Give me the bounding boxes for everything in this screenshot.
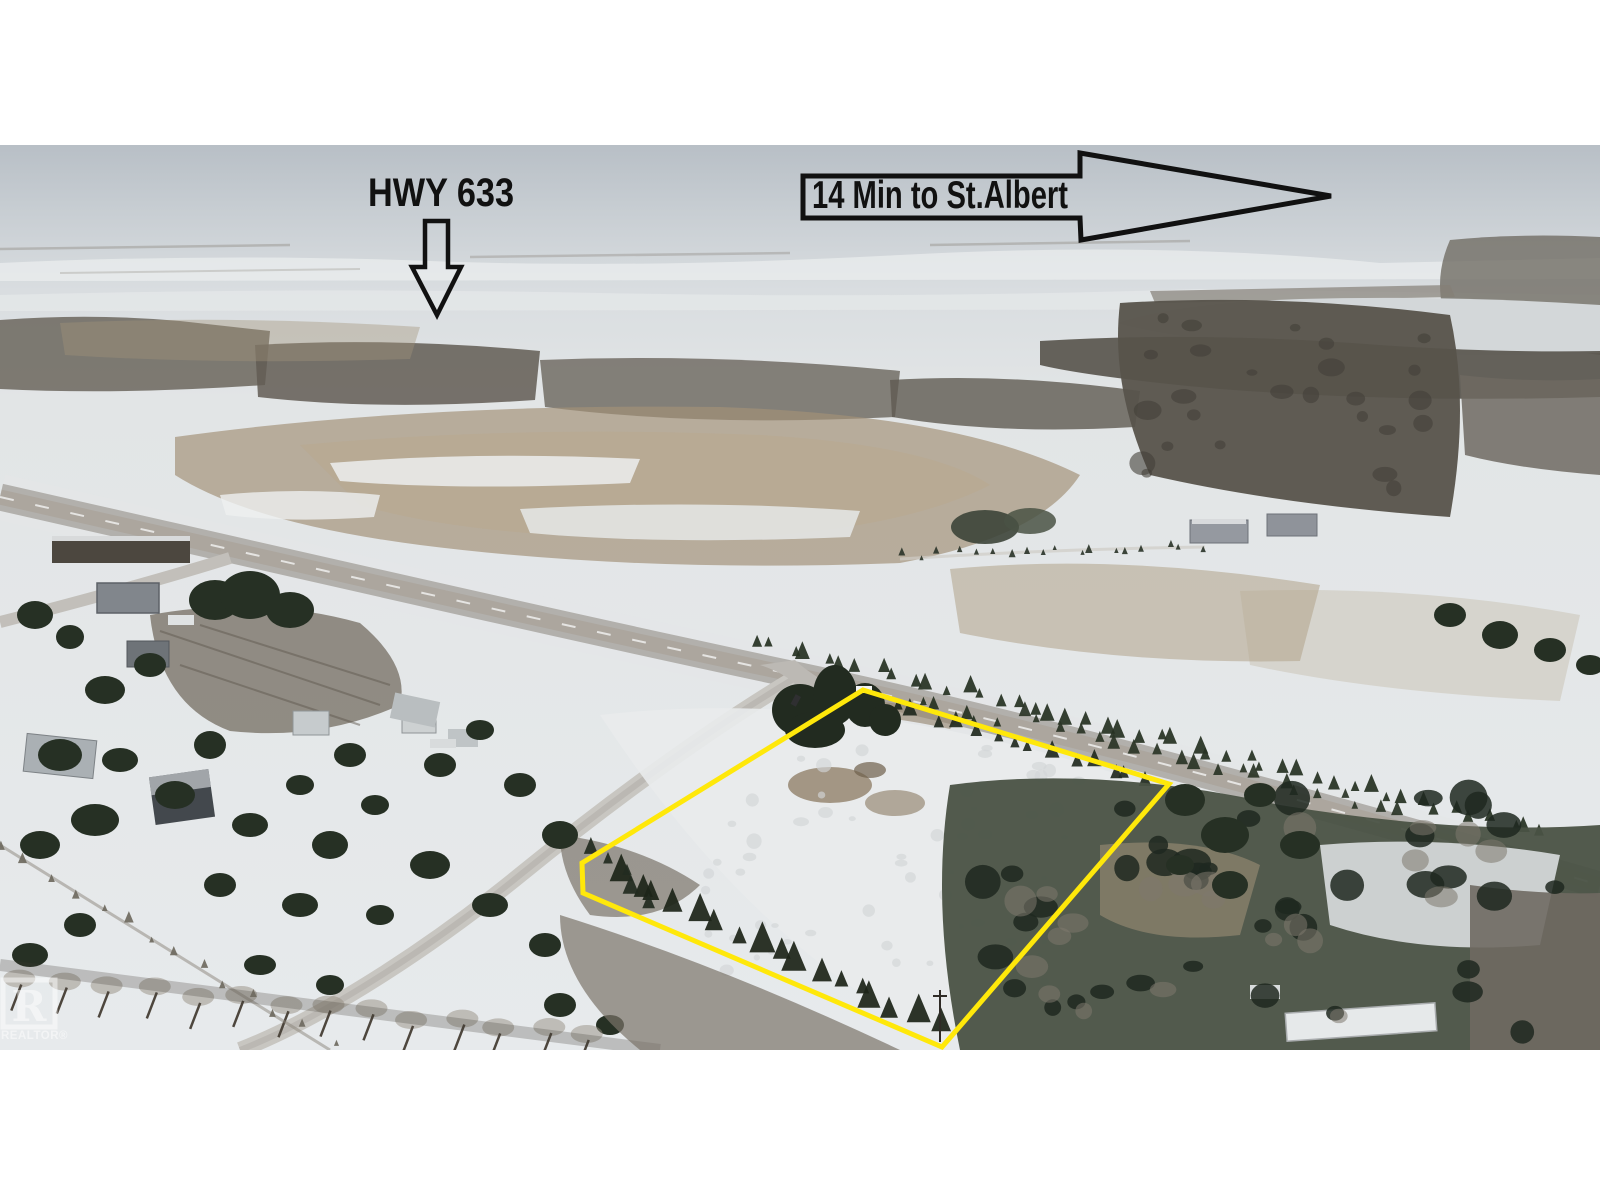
texture-blob	[1090, 985, 1114, 999]
texture-blob	[1001, 866, 1023, 883]
texture-blob	[1545, 880, 1564, 894]
texture-blob	[1409, 391, 1432, 410]
boat-trailer	[430, 739, 456, 748]
texture-blob	[1402, 849, 1429, 871]
texture-blob	[1413, 415, 1433, 432]
texture-blob	[743, 853, 757, 861]
texture-blob	[1183, 961, 1203, 972]
texture-blob	[1372, 467, 1397, 482]
texture-blob	[1149, 836, 1169, 854]
texture-blob	[1475, 840, 1507, 863]
texture-blob	[1414, 790, 1443, 806]
texture-blob	[1215, 440, 1226, 449]
texture-blob	[1319, 338, 1335, 350]
texture-blob	[1134, 401, 1162, 420]
screenshot-root: HWY 633 14 Min to St.Albert R REALTOR®	[0, 0, 1600, 1200]
texture-blob	[1004, 886, 1036, 917]
texture-blob	[1452, 981, 1483, 1002]
texture-blob	[1265, 933, 1282, 946]
letterbox-bottom	[0, 1050, 1600, 1200]
texture-blob	[1357, 411, 1368, 422]
texture-blob	[896, 854, 906, 860]
texture-blob	[771, 923, 779, 928]
texture-blob	[1246, 369, 1257, 375]
texture-blob	[1330, 870, 1364, 901]
texture-blob	[818, 791, 825, 798]
texture-blob	[1139, 877, 1163, 902]
texture-blob	[1477, 882, 1512, 911]
texture-blob	[1048, 927, 1072, 945]
texture-blob	[1450, 780, 1488, 816]
realtor-logo-text: REALTOR®	[1, 1030, 68, 1042]
texture-blob	[1181, 320, 1202, 332]
texture-blob	[1418, 333, 1431, 343]
texture-blob	[981, 745, 992, 751]
texture-blob	[1486, 812, 1521, 838]
texture-blob	[746, 793, 759, 806]
hwy-633-label: HWY 633	[368, 171, 514, 215]
texture-blob	[1171, 389, 1196, 404]
texture-blob	[1150, 982, 1177, 997]
texture-blob	[1290, 324, 1301, 332]
texture-blob	[704, 930, 712, 937]
texture-blob	[978, 944, 1014, 969]
texture-blob	[1510, 1020, 1534, 1043]
texture-blob	[1129, 451, 1155, 475]
texture-blob	[746, 833, 761, 848]
texture-blob	[1455, 821, 1480, 846]
texture-blob	[1330, 1009, 1348, 1023]
texture-blob	[1318, 358, 1345, 376]
house	[97, 583, 159, 613]
texture-blob	[905, 872, 916, 883]
texture-blob	[735, 868, 745, 875]
texture-blob	[1254, 919, 1271, 933]
texture-blob	[793, 817, 809, 826]
texture-blob	[703, 868, 714, 878]
texture-blob	[1187, 409, 1201, 420]
texture-blob	[1161, 442, 1173, 451]
texture-blob	[1408, 365, 1420, 376]
texture-blob	[895, 860, 908, 867]
texture-blob	[856, 744, 869, 756]
texture-blob	[701, 886, 710, 895]
texture-blob	[863, 904, 875, 916]
texture-blob	[892, 958, 901, 967]
texture-blob	[881, 941, 892, 951]
texture-blob	[1270, 385, 1293, 399]
texture-blob	[805, 930, 816, 937]
texture-blob	[849, 816, 856, 821]
texture-blob	[1114, 855, 1139, 881]
house	[293, 711, 329, 735]
texture-blob	[1457, 960, 1480, 979]
texture-blob	[1386, 480, 1401, 496]
texture-blob	[818, 807, 833, 818]
texture-blob	[1158, 313, 1169, 323]
rv-trailer	[168, 615, 194, 625]
texture-blob	[754, 954, 760, 960]
estate-house	[1267, 514, 1317, 536]
destination-label: 14 Min to St.Albert	[812, 174, 1068, 217]
texture-blob	[1284, 914, 1307, 937]
texture-blob	[816, 758, 831, 772]
texture-blob	[1251, 983, 1280, 1007]
texture-blob	[1274, 781, 1310, 816]
texture-blob	[1043, 764, 1056, 777]
realtor-logo-letter: R	[12, 982, 48, 1031]
aerial-photo-svg: HWY 633 14 Min to St.Albert R REALTOR®	[0, 145, 1600, 1050]
texture-blob	[1430, 865, 1467, 888]
texture-blob	[713, 859, 722, 866]
texture-blob	[728, 821, 737, 827]
texture-blob	[1003, 979, 1026, 997]
texture-blob	[1379, 425, 1396, 435]
texture-blob	[1410, 820, 1437, 835]
texture-blob	[1346, 392, 1365, 406]
texture-blob	[797, 756, 805, 762]
texture-blob	[965, 865, 1001, 899]
texture-blob	[926, 960, 933, 966]
texture-blob	[1038, 985, 1060, 1002]
aerial-photo: HWY 633 14 Min to St.Albert R REALTOR®	[0, 145, 1600, 1050]
texture-blob	[1144, 350, 1158, 360]
texture-blob	[1303, 387, 1319, 403]
texture-blob	[1114, 801, 1136, 817]
letterbox-top	[0, 0, 1600, 145]
texture-blob	[1036, 886, 1057, 902]
texture-blob	[1075, 1003, 1092, 1019]
texture-blob	[931, 829, 944, 841]
texture-blob	[1190, 344, 1211, 356]
texture-blob	[1425, 886, 1458, 907]
